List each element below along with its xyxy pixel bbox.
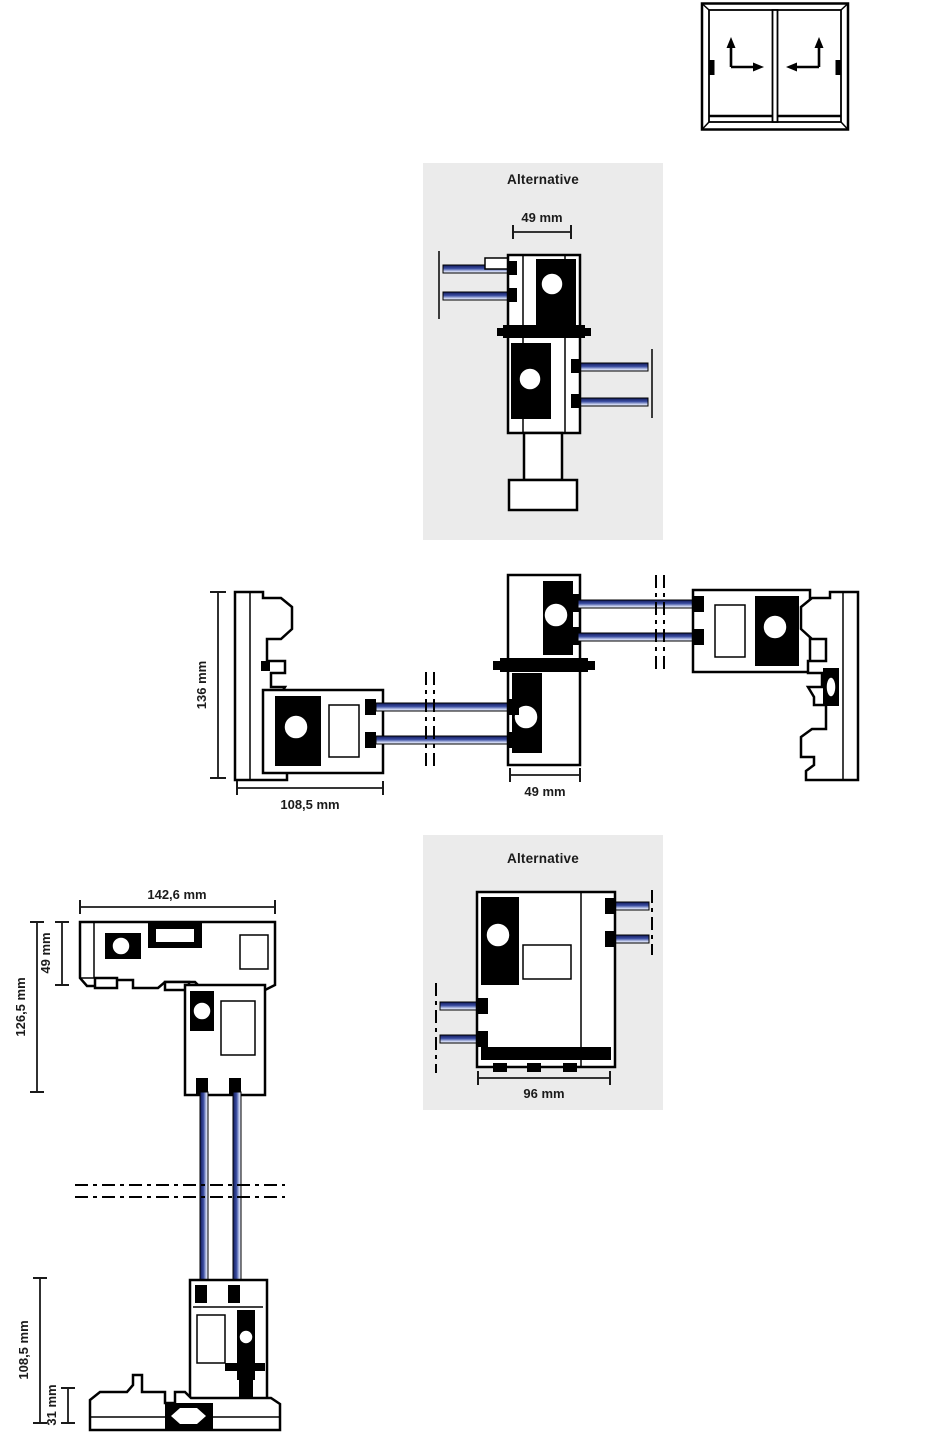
glass-pane xyxy=(200,1092,208,1298)
dimension-head-width-142-6mm: 142,6 mm xyxy=(80,887,275,914)
right-jamb-profile xyxy=(801,592,858,780)
vertical-section-drawing: 142,6 mm 49 mm 126,5 mm xyxy=(15,885,315,1436)
glass-pane xyxy=(233,1092,241,1298)
horizontal-section-drawing: 136 mm xyxy=(195,565,865,815)
glass-pane xyxy=(578,600,698,608)
right-handle xyxy=(836,60,842,75)
profile-hardware xyxy=(481,1047,611,1060)
glass-pane xyxy=(376,703,513,711)
dimension-label: 108,5 mm xyxy=(16,1320,31,1379)
dimension-frame-depth-136mm: 136 mm xyxy=(195,592,226,778)
dimension-bottom-height-108-5mm: 108,5 mm xyxy=(16,1278,47,1423)
glass-pane xyxy=(578,398,648,406)
dimension-label: 142,6 mm xyxy=(147,887,206,902)
dimension-label: 108,5 mm xyxy=(280,797,339,812)
dimension-label: 49 mm xyxy=(38,932,53,973)
glass-pane xyxy=(443,292,510,300)
interlock-hardware xyxy=(503,325,585,338)
glass-pane xyxy=(578,363,648,371)
interlock-hardware xyxy=(500,658,588,672)
left-sash-profile xyxy=(263,690,383,773)
alternative-panel-top: Alternative 49 mm xyxy=(423,163,663,540)
center-mullion xyxy=(773,10,778,122)
left-handle xyxy=(709,60,715,75)
interlock-foot-stem xyxy=(524,433,562,480)
dimension-track-height-31mm: 31 mm xyxy=(44,1384,75,1425)
alternative-profile xyxy=(477,892,616,1072)
head-frame-profile xyxy=(80,922,275,990)
dimension-label: 31 mm xyxy=(44,1384,59,1425)
alternative-bottom-section-drawing: 96 mm xyxy=(423,835,663,1110)
dimension-interlock-49mm: 49 mm xyxy=(510,768,580,799)
glass-pane xyxy=(440,1035,480,1043)
glass-pane xyxy=(611,935,649,943)
glass-pane xyxy=(578,633,698,641)
dimension-label: 126,5 mm xyxy=(15,977,28,1036)
dimension-interlock-49mm: 49 mm xyxy=(513,210,571,239)
dimension-label: 96 mm xyxy=(523,1086,564,1101)
glass-pane xyxy=(611,902,649,910)
right-sash-profile xyxy=(693,590,810,672)
alternative-panel-bottom: Alternative xyxy=(423,835,663,1110)
glass-pane xyxy=(376,736,513,744)
technical-drawing-page: Alternative 49 mm xyxy=(0,0,940,1436)
upper-sash-profile xyxy=(185,985,265,1096)
dimension-profile-96mm: 96 mm xyxy=(478,1071,610,1101)
dimension-sash-height-49mm: 49 mm xyxy=(38,922,69,985)
dimension-label: 136 mm xyxy=(195,661,209,709)
dimension-label: 49 mm xyxy=(521,210,562,225)
sliding-window-icon xyxy=(700,2,850,132)
dimension-label: 49 mm xyxy=(524,784,565,799)
lower-sash-profile xyxy=(190,1280,267,1407)
dimension-frame-width-108-5mm: 108,5 mm xyxy=(237,781,383,812)
glass-pane xyxy=(440,1002,480,1010)
alternative-top-section-drawing: 49 mm xyxy=(423,163,663,540)
